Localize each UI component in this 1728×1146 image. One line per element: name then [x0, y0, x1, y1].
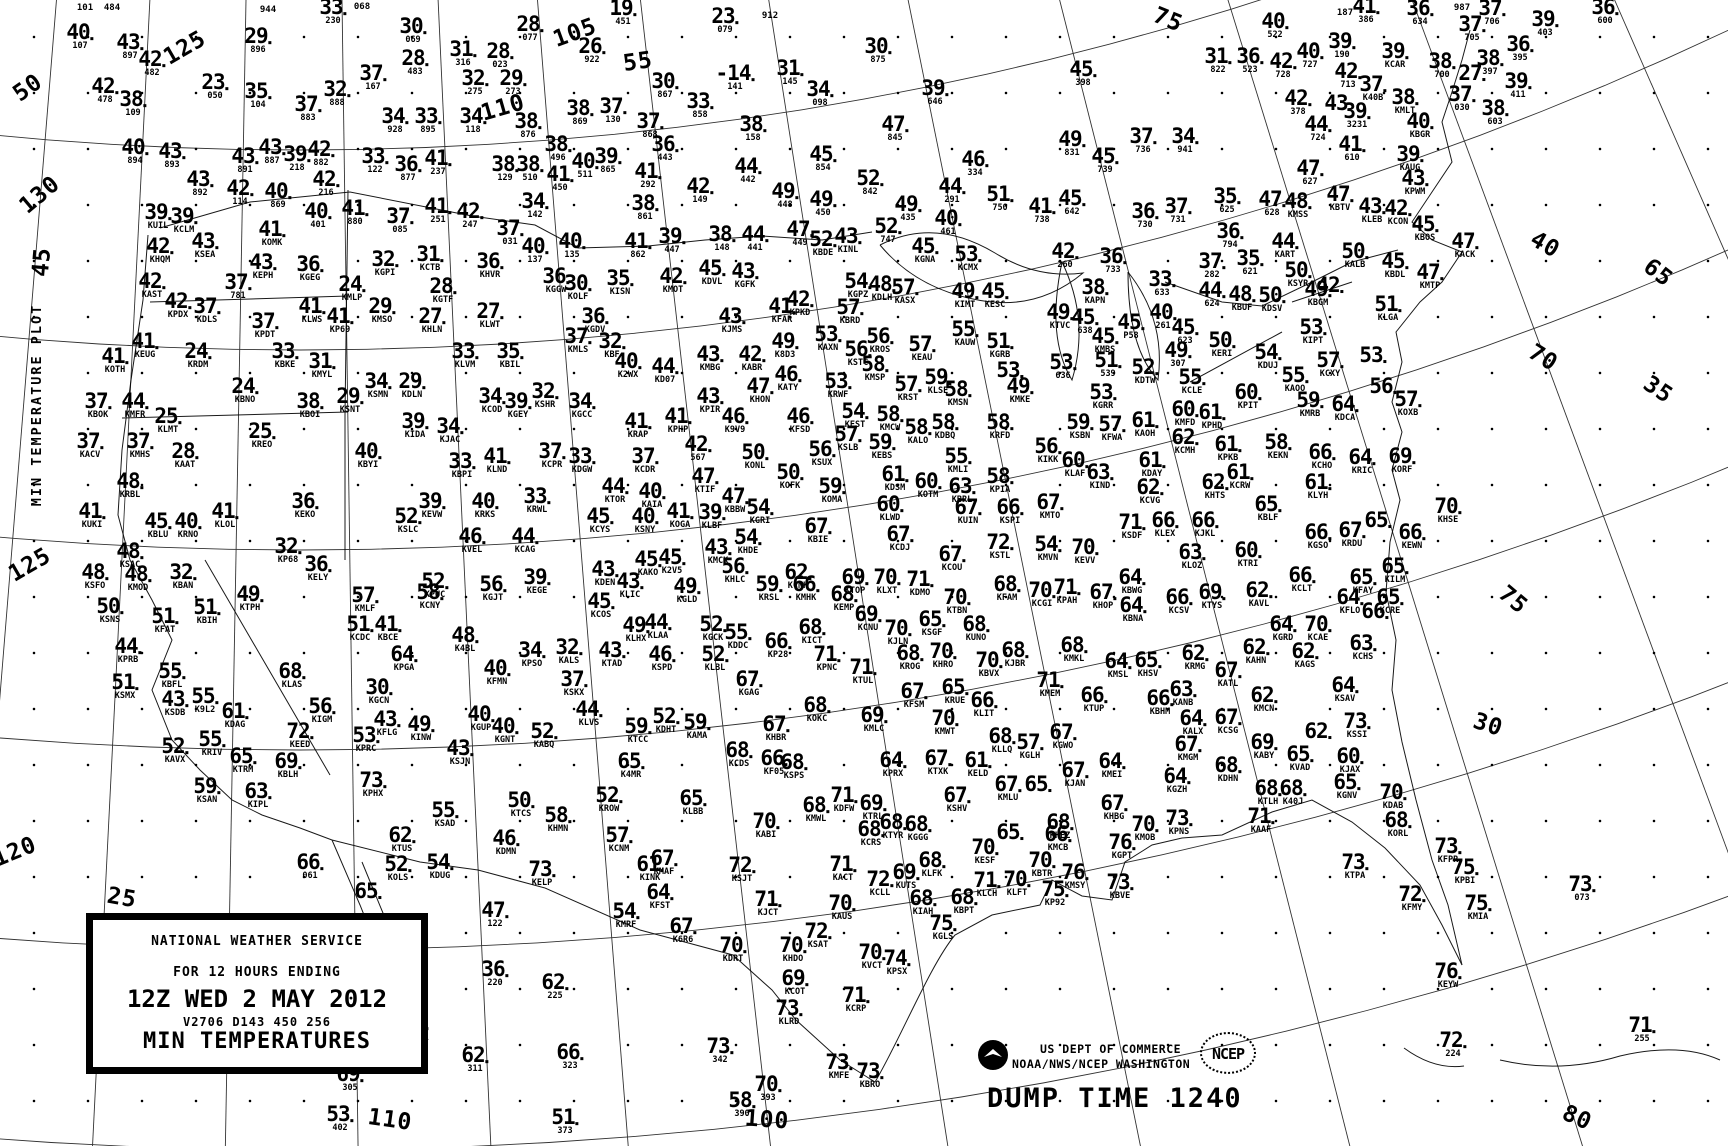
- station-plot: 30KGCN: [365, 678, 392, 705]
- station-plot: 37KMLS: [564, 327, 591, 354]
- station-id: KMRF: [612, 921, 639, 929]
- station-plot: 40KRNO: [174, 512, 201, 539]
- station-id: KOMK: [258, 239, 285, 247]
- station-id: KABY: [1250, 752, 1277, 760]
- station-plot: 73073: [1568, 875, 1595, 902]
- station-plot: 68K40J: [1279, 779, 1306, 806]
- station-plot: 29273: [499, 69, 526, 96]
- station-plot: 68KJBR: [1001, 641, 1028, 668]
- station-plot: 54KGPZ: [844, 272, 871, 299]
- station-plot: 33KBKE: [271, 342, 298, 369]
- station-plot: 59KAMA: [683, 713, 710, 740]
- station-id: K4BL: [451, 645, 478, 653]
- station-plot: 67KGAG: [735, 670, 762, 697]
- station-plot: 37KDLS: [193, 297, 220, 324]
- station-plot: 33KRWL: [523, 487, 550, 514]
- station-id: KPSX: [883, 968, 910, 976]
- station-id: KJKL: [1191, 530, 1218, 538]
- station-id: KALB: [1341, 261, 1368, 269]
- station-plot: 36733: [1099, 247, 1126, 274]
- station-plot: 29KMSO: [368, 297, 395, 324]
- station-plot: 64KBNA: [1119, 596, 1146, 623]
- station-id: KCMX: [954, 264, 981, 272]
- station-plot: 69KTYS: [1198, 583, 1225, 610]
- station-plot: 30867: [651, 72, 678, 99]
- loose-station-value: 068: [354, 2, 370, 12]
- station-id: KELY: [304, 574, 331, 582]
- station-id: KMSN: [944, 399, 971, 407]
- station-plot: 42567: [684, 435, 711, 462]
- station-plot: 68KSPS: [780, 753, 807, 780]
- station-plot: 56KROS: [866, 327, 893, 354]
- station-plot: 37130: [599, 97, 626, 124]
- station-id: KCGI: [1028, 600, 1055, 608]
- station-plot: 71KACT: [829, 855, 856, 882]
- station-plot: 67KJAN: [1061, 761, 1088, 788]
- station-id: KHOP: [1089, 602, 1116, 610]
- station-id: KTUP: [1080, 705, 1107, 713]
- station-plot: 37705: [1458, 15, 1485, 42]
- title-line-product: MIN TEMPERATURES: [93, 1029, 421, 1054]
- station-id: KMSP: [861, 374, 888, 382]
- station-plot: 61KPHD: [1198, 403, 1225, 430]
- station-plot: 70KMWT: [931, 709, 958, 736]
- station-id: KFAM: [993, 594, 1020, 602]
- station-plot: 37781: [224, 273, 251, 300]
- station-plot: 49450: [809, 190, 836, 217]
- station-plot: 37KBOK: [84, 392, 111, 419]
- station-id: KLIT: [970, 710, 997, 718]
- station-plot: 42713: [1334, 62, 1361, 89]
- station-plot: 70KCAE: [1304, 615, 1331, 642]
- station-plot: 56KIKK: [1034, 437, 1061, 464]
- station-plot: 26922: [578, 37, 605, 64]
- station-id: KGCN: [365, 697, 392, 705]
- station-id: KDAG: [221, 721, 248, 729]
- title-line-code: V2706 D143 450 256: [93, 1015, 421, 1029]
- station-plot: 53636: [1049, 353, 1076, 380]
- station-id: KTOR: [601, 496, 628, 504]
- station-id: KP69: [326, 326, 353, 334]
- station-id: KHQM: [146, 256, 173, 264]
- graticule-label: 25: [105, 883, 139, 914]
- station-id: KSAD: [431, 820, 458, 828]
- station-plot: 69KMLC: [860, 706, 887, 733]
- station-plot: 67KTXK: [924, 749, 951, 776]
- station-id: KBVX: [975, 670, 1002, 678]
- station-plot: 67KHBR: [762, 715, 789, 742]
- station-plot: 50KOFK: [776, 463, 803, 490]
- station-id: KSTL: [986, 552, 1013, 560]
- station-plot: 68KICT: [798, 618, 825, 645]
- station-id: KUIN: [954, 517, 981, 525]
- station-id: KMTP: [1416, 282, 1443, 290]
- station-id: KRAP: [624, 431, 651, 439]
- station-id: KTRI: [1234, 560, 1261, 568]
- station-id: KEBS: [868, 452, 895, 460]
- station-id: KSFO: [81, 582, 108, 590]
- station-plot: 42728: [1269, 52, 1296, 79]
- station-plot: 43KGFK: [731, 262, 758, 289]
- station-id: KDFW: [830, 805, 857, 813]
- station-plot: 45KESC: [981, 282, 1008, 309]
- station-plot: 23050: [201, 73, 228, 100]
- station-id: KDUJ: [1254, 362, 1281, 370]
- station-id: KAAF: [1247, 826, 1274, 834]
- station-id: KGNV: [1333, 792, 1360, 800]
- station-plot: 62KAGS: [1291, 642, 1318, 669]
- station-id: KBOK: [84, 411, 111, 419]
- station-plot: 37KCDR: [631, 447, 658, 474]
- station-plot: 44KD07: [651, 357, 678, 384]
- station-id: KALO: [904, 437, 931, 445]
- station-id: KPHD: [1198, 422, 1225, 430]
- station-id: KATY: [774, 384, 801, 392]
- station-plot: 71KDFW: [830, 786, 857, 813]
- station-plot: 45KCOS: [587, 592, 614, 619]
- station-plot: 64KBWG: [1118, 568, 1145, 595]
- station-plot: 73KPHX: [359, 771, 386, 798]
- station-plot: 66KMHK: [792, 575, 819, 602]
- station-plot: 31316: [449, 40, 476, 67]
- station-plot: 49KIMT: [951, 282, 978, 309]
- station-id: KBNO: [231, 396, 258, 404]
- station-id: KRDM: [184, 361, 211, 369]
- station-plot: 37KPDT: [251, 312, 278, 339]
- station-plot: 24KBNO: [231, 377, 258, 404]
- station-plot: 30KOLF: [564, 274, 591, 301]
- station-plot: 69KABY: [1250, 733, 1277, 760]
- station-plot: 59KSBN: [1066, 413, 1093, 440]
- side-axis-label: MIN TEMPERATURE PLOT: [29, 304, 45, 507]
- station-plot: 55KRIV: [198, 730, 225, 757]
- station-id: KOTH: [101, 366, 128, 374]
- station-plot: 43KDEN: [591, 560, 618, 587]
- station-plot: 41610: [1338, 135, 1365, 162]
- station-id: KGNT: [491, 736, 518, 744]
- station-plot: 70KEVV: [1071, 538, 1098, 565]
- station-plot: 23079: [711, 7, 738, 34]
- station-id: KMTO: [1036, 512, 1063, 520]
- station-plot: 73KSSI: [1343, 712, 1370, 739]
- station-plot: 42260: [1051, 242, 1078, 269]
- station-id: KEGE: [523, 587, 550, 595]
- station-id: KCYS: [586, 526, 613, 534]
- station-id: KSEA: [191, 251, 218, 259]
- station-plot: 41450: [546, 165, 573, 192]
- station-id: KBOI: [296, 411, 323, 419]
- station-plot: 57KCXY: [1316, 351, 1343, 378]
- station-plot: 37085: [386, 207, 413, 234]
- station-plot: 68KROG: [896, 644, 923, 671]
- station-plot: 49831: [1058, 130, 1085, 157]
- station-plot: 71KPNC: [813, 645, 840, 672]
- station-plot: 63KIND: [1086, 463, 1113, 490]
- station-id: KGCK: [699, 634, 726, 642]
- station-plot: 70KVCT: [858, 943, 885, 970]
- title-legend-box: NATIONAL WEATHER SERVICE FOR 12 HOURS EN…: [86, 913, 428, 1074]
- station-id: K40J: [1279, 798, 1306, 806]
- station-plot: 19451: [609, 0, 636, 26]
- station-plot: 46KFSD: [786, 407, 813, 434]
- station-plot: 62311: [461, 1046, 488, 1073]
- station-plot: 40KGNT: [491, 717, 518, 744]
- station-plot: 71KSDF: [1118, 513, 1145, 540]
- station-id: KHDO: [779, 955, 806, 963]
- station-plot: 45398: [1069, 60, 1096, 87]
- station-plot: 68KLAS: [278, 662, 305, 689]
- station-plot: 44624: [1198, 281, 1225, 308]
- station-id: KEAU: [908, 354, 935, 362]
- station-plot: 41386: [1352, 0, 1379, 24]
- noaa-seagull-icon: [978, 1040, 1008, 1070]
- station-plot: 57KSLB: [834, 425, 861, 452]
- station-id: KRWL: [523, 506, 550, 514]
- station-id: KSDF: [1118, 532, 1145, 540]
- station-plot: 42KMOT: [659, 267, 686, 294]
- station-plot: 59KMRB: [1296, 391, 1323, 418]
- station-plot: 76KEYW: [1434, 962, 1461, 989]
- station-plot: 49KTPH: [236, 585, 263, 612]
- station-id: KLRD: [775, 1018, 802, 1026]
- station-id: KJBR: [1001, 660, 1028, 668]
- station-id: KSNT: [336, 406, 363, 414]
- station-plot: 41292: [634, 162, 661, 189]
- station-id: KMOT: [659, 286, 686, 294]
- station-plot: 41KOTH: [101, 347, 128, 374]
- station-id: KDEN: [591, 579, 618, 587]
- station-id: KMLS: [564, 346, 591, 354]
- station-id: KDHT: [652, 726, 679, 734]
- station-plot: 50KDSV: [1258, 286, 1285, 313]
- station-plot: 52KPUC: [421, 572, 448, 599]
- station-plot: 66KLEX: [1151, 511, 1178, 538]
- station-plot: 72KSTL: [986, 533, 1013, 560]
- station-id: K2WX: [614, 371, 641, 379]
- station-plot: 53KCMX: [954, 245, 981, 272]
- station-id: KAUS: [828, 913, 855, 921]
- station-id: KBCE: [374, 634, 401, 642]
- station-plot: 61KINK: [636, 855, 663, 882]
- station-id: KSDB: [161, 709, 188, 717]
- station-plot: 65: [354, 882, 381, 902]
- station-plot: 39KEGE: [523, 568, 550, 595]
- station-plot: 54KDUJ: [1254, 343, 1281, 370]
- station-plot: 67K6R6: [669, 917, 696, 944]
- station-plot: 65KSGF: [918, 610, 945, 637]
- station-plot: 45739: [1091, 147, 1118, 174]
- station-plot: 43KLEB: [1358, 197, 1385, 224]
- station-id: KRWF: [824, 391, 851, 399]
- station-id: KIKK: [1034, 456, 1061, 464]
- station-plot: 62: [1304, 722, 1331, 742]
- station-id: KGRR: [1089, 402, 1116, 410]
- station-id: KTCS: [507, 810, 534, 818]
- station-id: KMGM: [1174, 754, 1201, 762]
- station-plot: 52KROW: [595, 786, 622, 813]
- station-plot: 50KTCS: [507, 791, 534, 818]
- station-plot: 42478: [91, 77, 118, 104]
- station-id: KFSD: [786, 426, 813, 434]
- station-plot: 40869: [264, 182, 291, 209]
- station-id: KLMT: [154, 426, 181, 434]
- station-plot: 44KPRB: [114, 637, 141, 664]
- station-plot: 51KLGA: [1374, 295, 1401, 322]
- station-plot: 65KVAD: [1286, 745, 1313, 772]
- station-plot: 69KORF: [1388, 447, 1415, 474]
- station-plot: 71KCRP: [842, 986, 869, 1013]
- station-id: KPAH: [1053, 597, 1080, 605]
- station-id: KCPR: [538, 461, 565, 469]
- station-plot: 36KELY: [304, 555, 331, 582]
- station-plot: 59KOMA: [818, 477, 845, 504]
- station-plot: 34941: [1171, 127, 1198, 154]
- station-plot: 60KLWD: [876, 495, 903, 522]
- station-plot: 62KRMG: [1181, 644, 1208, 671]
- station-id: KMLP: [338, 294, 365, 302]
- station-plot: 75KP92: [1041, 880, 1068, 907]
- station-id: KCON: [1384, 218, 1411, 226]
- station-id: KEVV: [1071, 557, 1098, 565]
- station-plot: 40137: [521, 237, 548, 264]
- station-plot: 36877: [394, 155, 421, 182]
- station-plot: 43KINL: [834, 227, 861, 254]
- station-id: KBKE: [271, 361, 298, 369]
- station-plot: 43887: [258, 138, 285, 165]
- station-plot: 68KLFK: [918, 851, 945, 878]
- station-plot: 25KLMT: [154, 407, 181, 434]
- station-plot: 63KIPL: [244, 782, 271, 809]
- station-plot: 48KMSS: [1284, 192, 1311, 219]
- station-plot: 36523: [1236, 47, 1263, 74]
- dump-time-label: DUMP TIME 1240: [987, 1083, 1243, 1114]
- station-plot: 71KTUL: [849, 658, 876, 685]
- loose-station-value: 101: [77, 3, 93, 13]
- station-id: KLEB: [1358, 216, 1385, 224]
- station-id: KORL: [1384, 830, 1411, 838]
- station-plot: 73KTPA: [1341, 853, 1368, 880]
- station-plot: 65KTRM: [229, 747, 256, 774]
- station-plot: 37030: [1448, 85, 1475, 112]
- station-plot: 64KMSL: [1104, 652, 1131, 679]
- station-id: KROG: [896, 663, 923, 671]
- station-plot: 56KGJT: [479, 575, 506, 602]
- station-plot: 49KBGM: [1304, 280, 1331, 307]
- station-plot: 60KMFD: [1171, 400, 1198, 427]
- station-id: KDLN: [398, 391, 425, 399]
- station-plot: 45K2V5: [658, 548, 685, 575]
- station-id: KLWS: [298, 316, 325, 324]
- station-id: KGPT: [1108, 852, 1135, 860]
- station-id: KEYW: [1434, 981, 1461, 989]
- station-id: KBIH: [193, 617, 220, 625]
- station-plot: 34KSMN: [364, 372, 391, 399]
- min-temperature-weather-map: MIN TEMPERATURE PLOT 5013045125125120251…: [0, 0, 1728, 1146]
- station-id: KINL: [834, 246, 861, 254]
- station-temp: 62: [1304, 719, 1331, 743]
- station-id: KBAN: [169, 582, 196, 590]
- station-id: KSAT: [804, 941, 831, 949]
- station-plot: 60KPIT: [1234, 383, 1261, 410]
- station-plot: 46KSPD: [648, 645, 675, 672]
- station-id: KCDJ: [886, 544, 913, 552]
- station-plot: 43891: [231, 147, 258, 174]
- station-plot: 68KLLQ: [988, 727, 1015, 754]
- station-plot: 44724: [1304, 115, 1331, 142]
- station-plot: 44KCAG: [511, 527, 538, 554]
- station-id: KLGA: [1374, 314, 1401, 322]
- station-id: KAVX: [161, 756, 188, 764]
- station-plot: 39KGEY: [504, 392, 531, 419]
- title-line-period: FOR 12 HOURS ENDING: [93, 965, 421, 980]
- station-plot: 61KLYH: [1304, 473, 1331, 500]
- station-id: KGPZ: [844, 291, 871, 299]
- station-plot: 68KORL: [1384, 811, 1411, 838]
- station-id: KCXY: [1316, 370, 1343, 378]
- station-plot: 52KAVX: [161, 737, 188, 764]
- station-id: KBDL: [1381, 271, 1408, 279]
- station-plot: 36KEKO: [291, 492, 318, 519]
- station-plot: 75KGLS: [929, 914, 956, 941]
- station-plot: 70393: [754, 1075, 781, 1102]
- station-plot: 68KDHN: [1214, 756, 1241, 783]
- station-plot: 70KBVX: [975, 651, 1002, 678]
- station-plot: 47KACK: [1451, 232, 1478, 259]
- station-plot: 31822: [1204, 47, 1231, 74]
- station-id: KJMS: [718, 326, 745, 334]
- station-plot: 45KBOS: [1411, 215, 1438, 242]
- station-plot: 38109: [119, 90, 146, 117]
- station-plot: 32KSHR: [531, 382, 558, 409]
- station-plot: 39KIDA: [401, 412, 428, 439]
- station-plot: 24KRDM: [184, 342, 211, 369]
- station-plot: 57KMLF: [351, 586, 378, 613]
- station-plot: 75KMIA: [1464, 894, 1491, 921]
- station-id: KCRW: [1226, 482, 1253, 490]
- station-id: KLIC: [616, 591, 643, 599]
- station-id: KSAV: [1331, 695, 1358, 703]
- station-plot: 53KPRC: [352, 726, 379, 753]
- station-plot: 34142: [521, 192, 548, 219]
- station-plot: 65: [1364, 511, 1391, 531]
- station-plot: 43KSJN: [446, 739, 473, 766]
- station-plot: 34KJAC: [436, 417, 463, 444]
- station-id: KMHK: [792, 594, 819, 602]
- station-id: KROW: [595, 805, 622, 813]
- station-id: KPRB: [114, 656, 141, 664]
- station-id: KRFD: [986, 432, 1013, 440]
- station-id: KOLF: [564, 293, 591, 301]
- station-id: KGLS: [929, 933, 956, 941]
- station-id: KSLB: [834, 444, 861, 452]
- station-id: KBIE: [804, 536, 831, 544]
- station-plot: 63KBRL: [948, 477, 975, 504]
- station-id: KCNY: [416, 602, 443, 610]
- station-plot: 51KFAT: [151, 607, 178, 634]
- station-plot: 70KABI: [752, 812, 779, 839]
- station-plot: 42KAST: [138, 272, 165, 299]
- station-id: KLAS: [278, 681, 305, 689]
- station-plot: 58KMSN: [944, 380, 971, 407]
- station-id: KRSL: [755, 594, 782, 602]
- station-id: KATL: [1214, 680, 1241, 688]
- station-id: KDRT: [719, 955, 746, 963]
- station-plot: 66KTUP: [1080, 686, 1107, 713]
- station-id: KHBG: [1100, 813, 1127, 821]
- station-id: KMCN: [1250, 705, 1277, 713]
- station-id: KBGR: [1406, 131, 1433, 139]
- station-plot: 43KEPH: [249, 253, 276, 280]
